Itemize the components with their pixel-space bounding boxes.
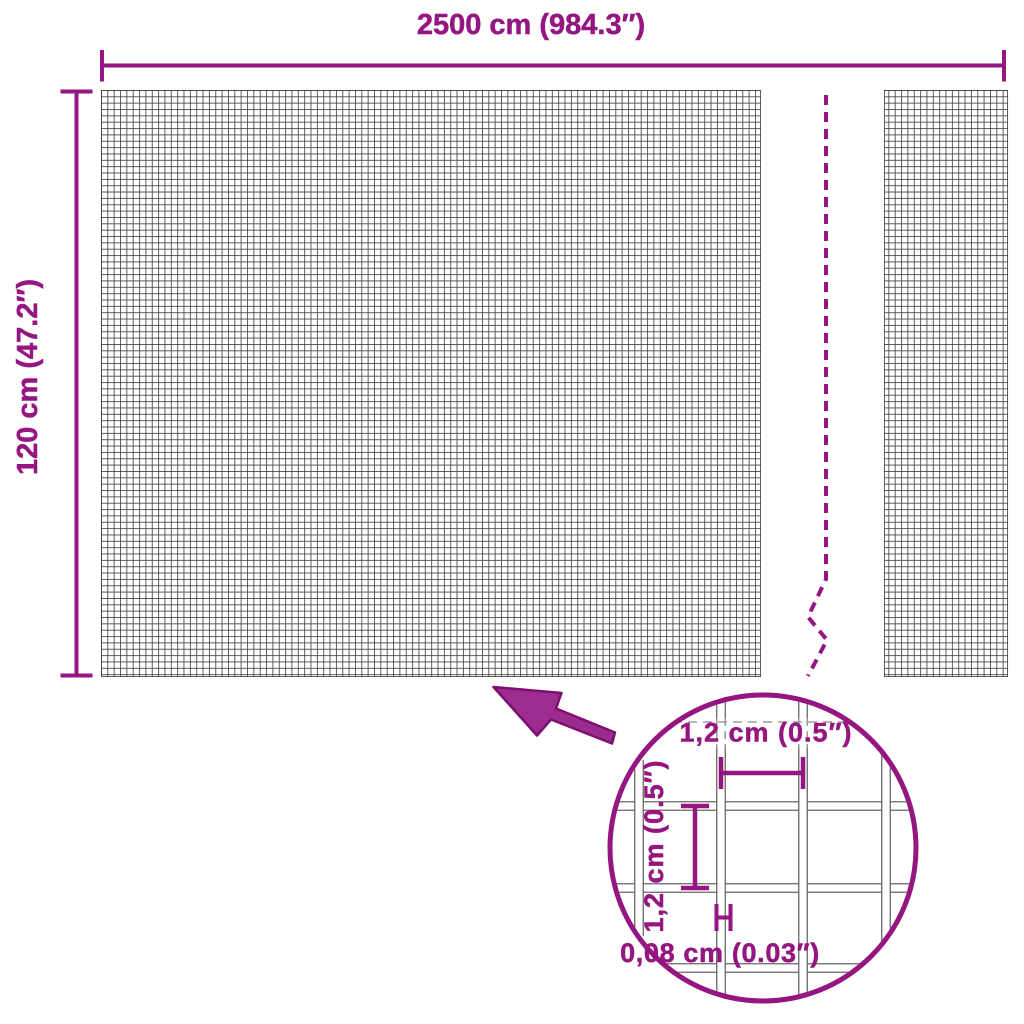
- svg-text:1,2 cm (0.5″): 1,2 cm (0.5″): [679, 718, 852, 748]
- svg-text:0,08 cm (0.03″): 0,08 cm (0.03″): [620, 938, 820, 968]
- svg-text:1,2 cm (0.5″): 1,2 cm (0.5″): [639, 759, 669, 932]
- svg-text:120 cm (47.2″): 120 cm (47.2″): [12, 279, 44, 475]
- svg-text:2500 cm (984.3″): 2500 cm (984.3″): [417, 9, 645, 41]
